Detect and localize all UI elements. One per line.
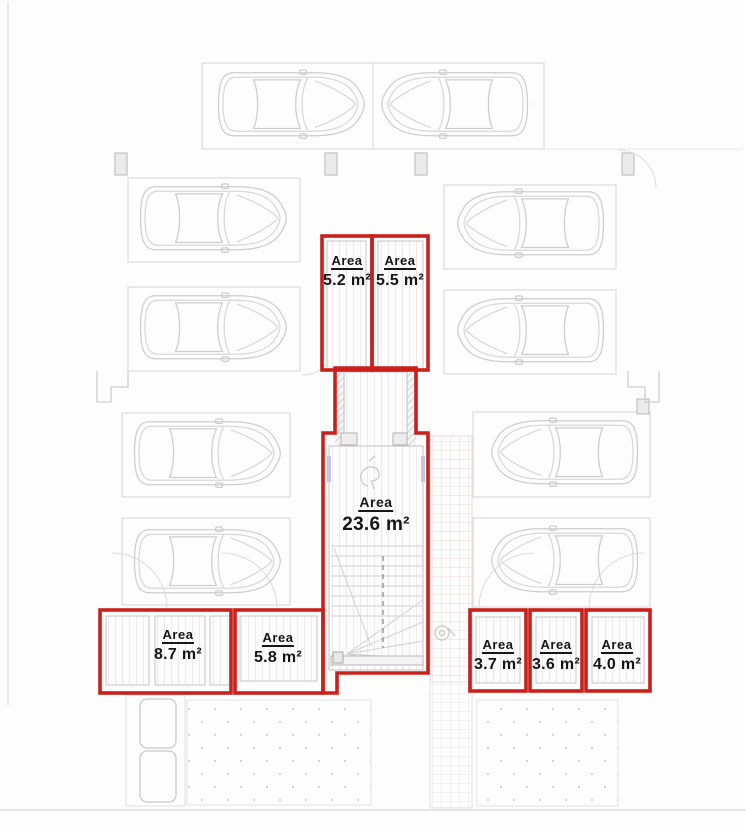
- floor-plan: Area 5.2 m² Area 5.5 m² Area 23.6 m² Are…: [0, 0, 746, 830]
- area-value: 3.7 m²: [474, 656, 522, 674]
- area-word: Area: [262, 631, 295, 647]
- car-icon: [382, 70, 528, 138]
- area-value: 4.0 m²: [593, 656, 641, 674]
- door-jamb: [421, 456, 425, 482]
- floor-plan-drawing: [0, 0, 746, 830]
- area-value: 3.6 m²: [532, 656, 580, 674]
- car-icon: [141, 293, 287, 361]
- area-word: Area: [601, 638, 634, 654]
- area-word: Area: [331, 254, 364, 270]
- area-label-4-0: Area 4.0 m²: [593, 636, 641, 674]
- area-label-5-5: Area 5.5 m²: [376, 252, 424, 290]
- moto-space: [140, 699, 176, 748]
- car-icon: [458, 189, 604, 257]
- area-word: Area: [384, 254, 417, 270]
- area-label-3-7: Area 3.7 m²: [474, 636, 522, 674]
- area-word: Area: [482, 638, 515, 654]
- area-value: 23.6 m²: [342, 514, 410, 536]
- door-jamb: [327, 456, 331, 482]
- area-label-23-6: Area 23.6 m²: [342, 494, 410, 536]
- area-label-8-7: Area 8.7 m²: [154, 626, 202, 664]
- car-icon: [135, 527, 281, 595]
- car-icon: [141, 184, 287, 252]
- car-icon: [492, 418, 638, 486]
- area-value: 5.5 m²: [376, 272, 424, 290]
- area-label-3-6: Area 3.6 m²: [532, 636, 580, 674]
- moto-space: [140, 751, 176, 802]
- area-word: Area: [358, 495, 393, 512]
- area-label-5-2: Area 5.2 m²: [323, 252, 371, 290]
- area-word: Area: [162, 628, 195, 644]
- car-icon: [135, 419, 281, 487]
- area-word: Area: [540, 638, 573, 654]
- area-value: 8.7 m²: [154, 646, 202, 664]
- area-label-5-8: Area 5.8 m²: [254, 629, 302, 667]
- ramp-grid: [430, 436, 472, 682]
- area-value: 5.2 m²: [323, 272, 371, 290]
- area-value: 5.8 m²: [254, 649, 302, 667]
- car-icon: [219, 70, 365, 138]
- car-icon: [458, 296, 604, 364]
